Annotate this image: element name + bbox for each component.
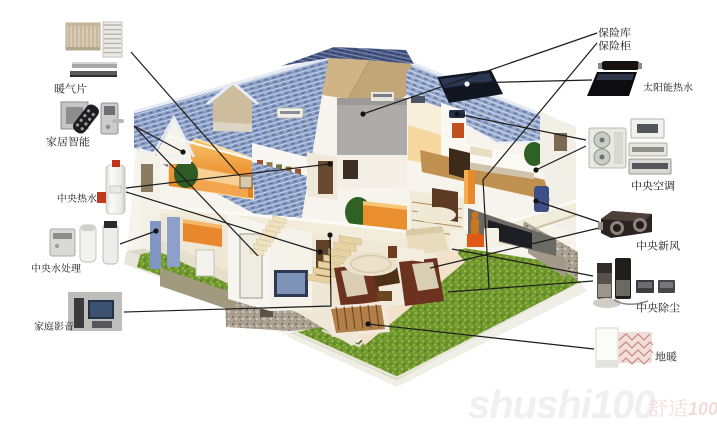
- svg-text:shushi100: shushi100: [468, 383, 655, 426]
- svg-text:100: 100: [688, 399, 717, 419]
